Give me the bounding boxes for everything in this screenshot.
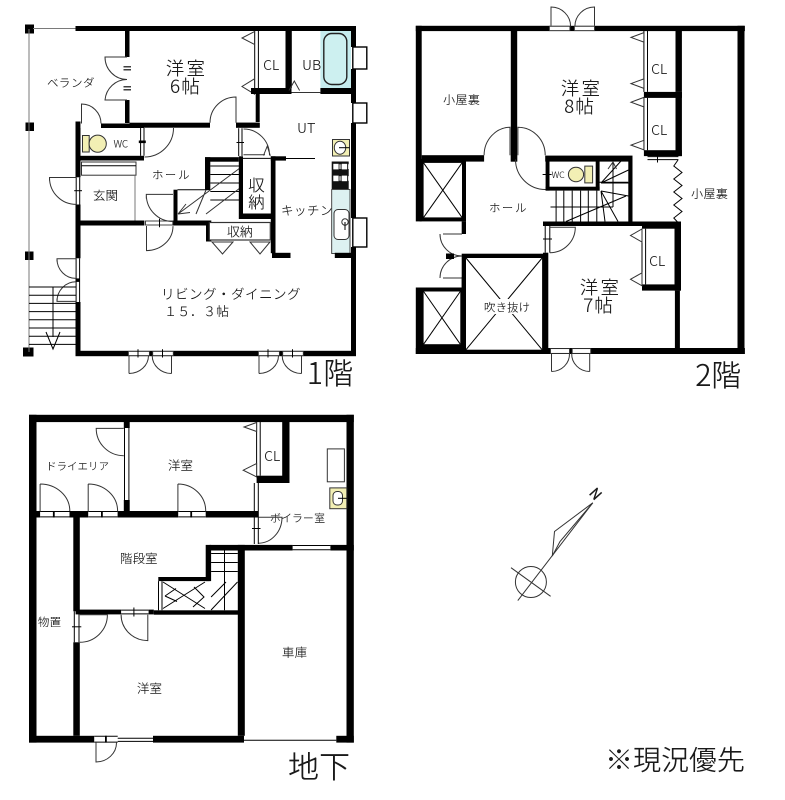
svg-text:ベランダ: ベランダ [47, 75, 95, 91]
svg-text:1階: 1階 [307, 349, 353, 393]
svg-text:納: 納 [248, 189, 265, 213]
svg-text:リビング・ダイニング: リビング・ダイニング [161, 283, 301, 303]
svg-text:地下: 地下 [288, 742, 350, 787]
svg-text:※現況優先: ※現況優先 [605, 739, 745, 779]
svg-text:CL: CL [264, 446, 280, 466]
svg-text:CL: CL [263, 55, 279, 75]
svg-text:１５．３帖: １５．３帖 [164, 301, 229, 320]
svg-text:階段室: 階段室 [120, 548, 158, 567]
svg-text:WC: WC [114, 136, 129, 151]
svg-text:車庫: 車庫 [282, 642, 307, 661]
svg-text:物置: 物置 [38, 614, 61, 630]
svg-text:CL: CL [651, 59, 667, 79]
svg-text:ボイラー室: ボイラー室 [270, 510, 325, 526]
svg-text:ドライエリア: ドライエリア [46, 459, 109, 474]
svg-text:小屋裏: 小屋裏 [691, 185, 729, 202]
svg-text:7帖: 7帖 [583, 292, 614, 318]
svg-text:UB: UB [302, 55, 321, 75]
svg-text:8帖: 8帖 [564, 93, 595, 119]
svg-text:吹き抜け: 吹き抜け [484, 300, 530, 316]
svg-text:洋室: 洋室 [137, 678, 163, 697]
svg-text:収納: 収納 [227, 222, 253, 241]
svg-text:小屋裏: 小屋裏 [443, 91, 481, 108]
svg-text:WC: WC [552, 168, 565, 181]
svg-text:ホール: ホール [489, 200, 528, 216]
svg-text:CL: CL [649, 251, 665, 271]
svg-text:6帖: 6帖 [170, 73, 201, 99]
svg-text:CL: CL [651, 120, 667, 140]
svg-text:玄関: 玄関 [93, 185, 118, 204]
svg-text:キッチン: キッチン [281, 200, 333, 219]
svg-text:ホール: ホール [152, 167, 191, 183]
svg-text:UT: UT [297, 118, 316, 138]
svg-text:2階: 2階 [695, 351, 741, 395]
svg-text:洋室: 洋室 [168, 455, 194, 474]
